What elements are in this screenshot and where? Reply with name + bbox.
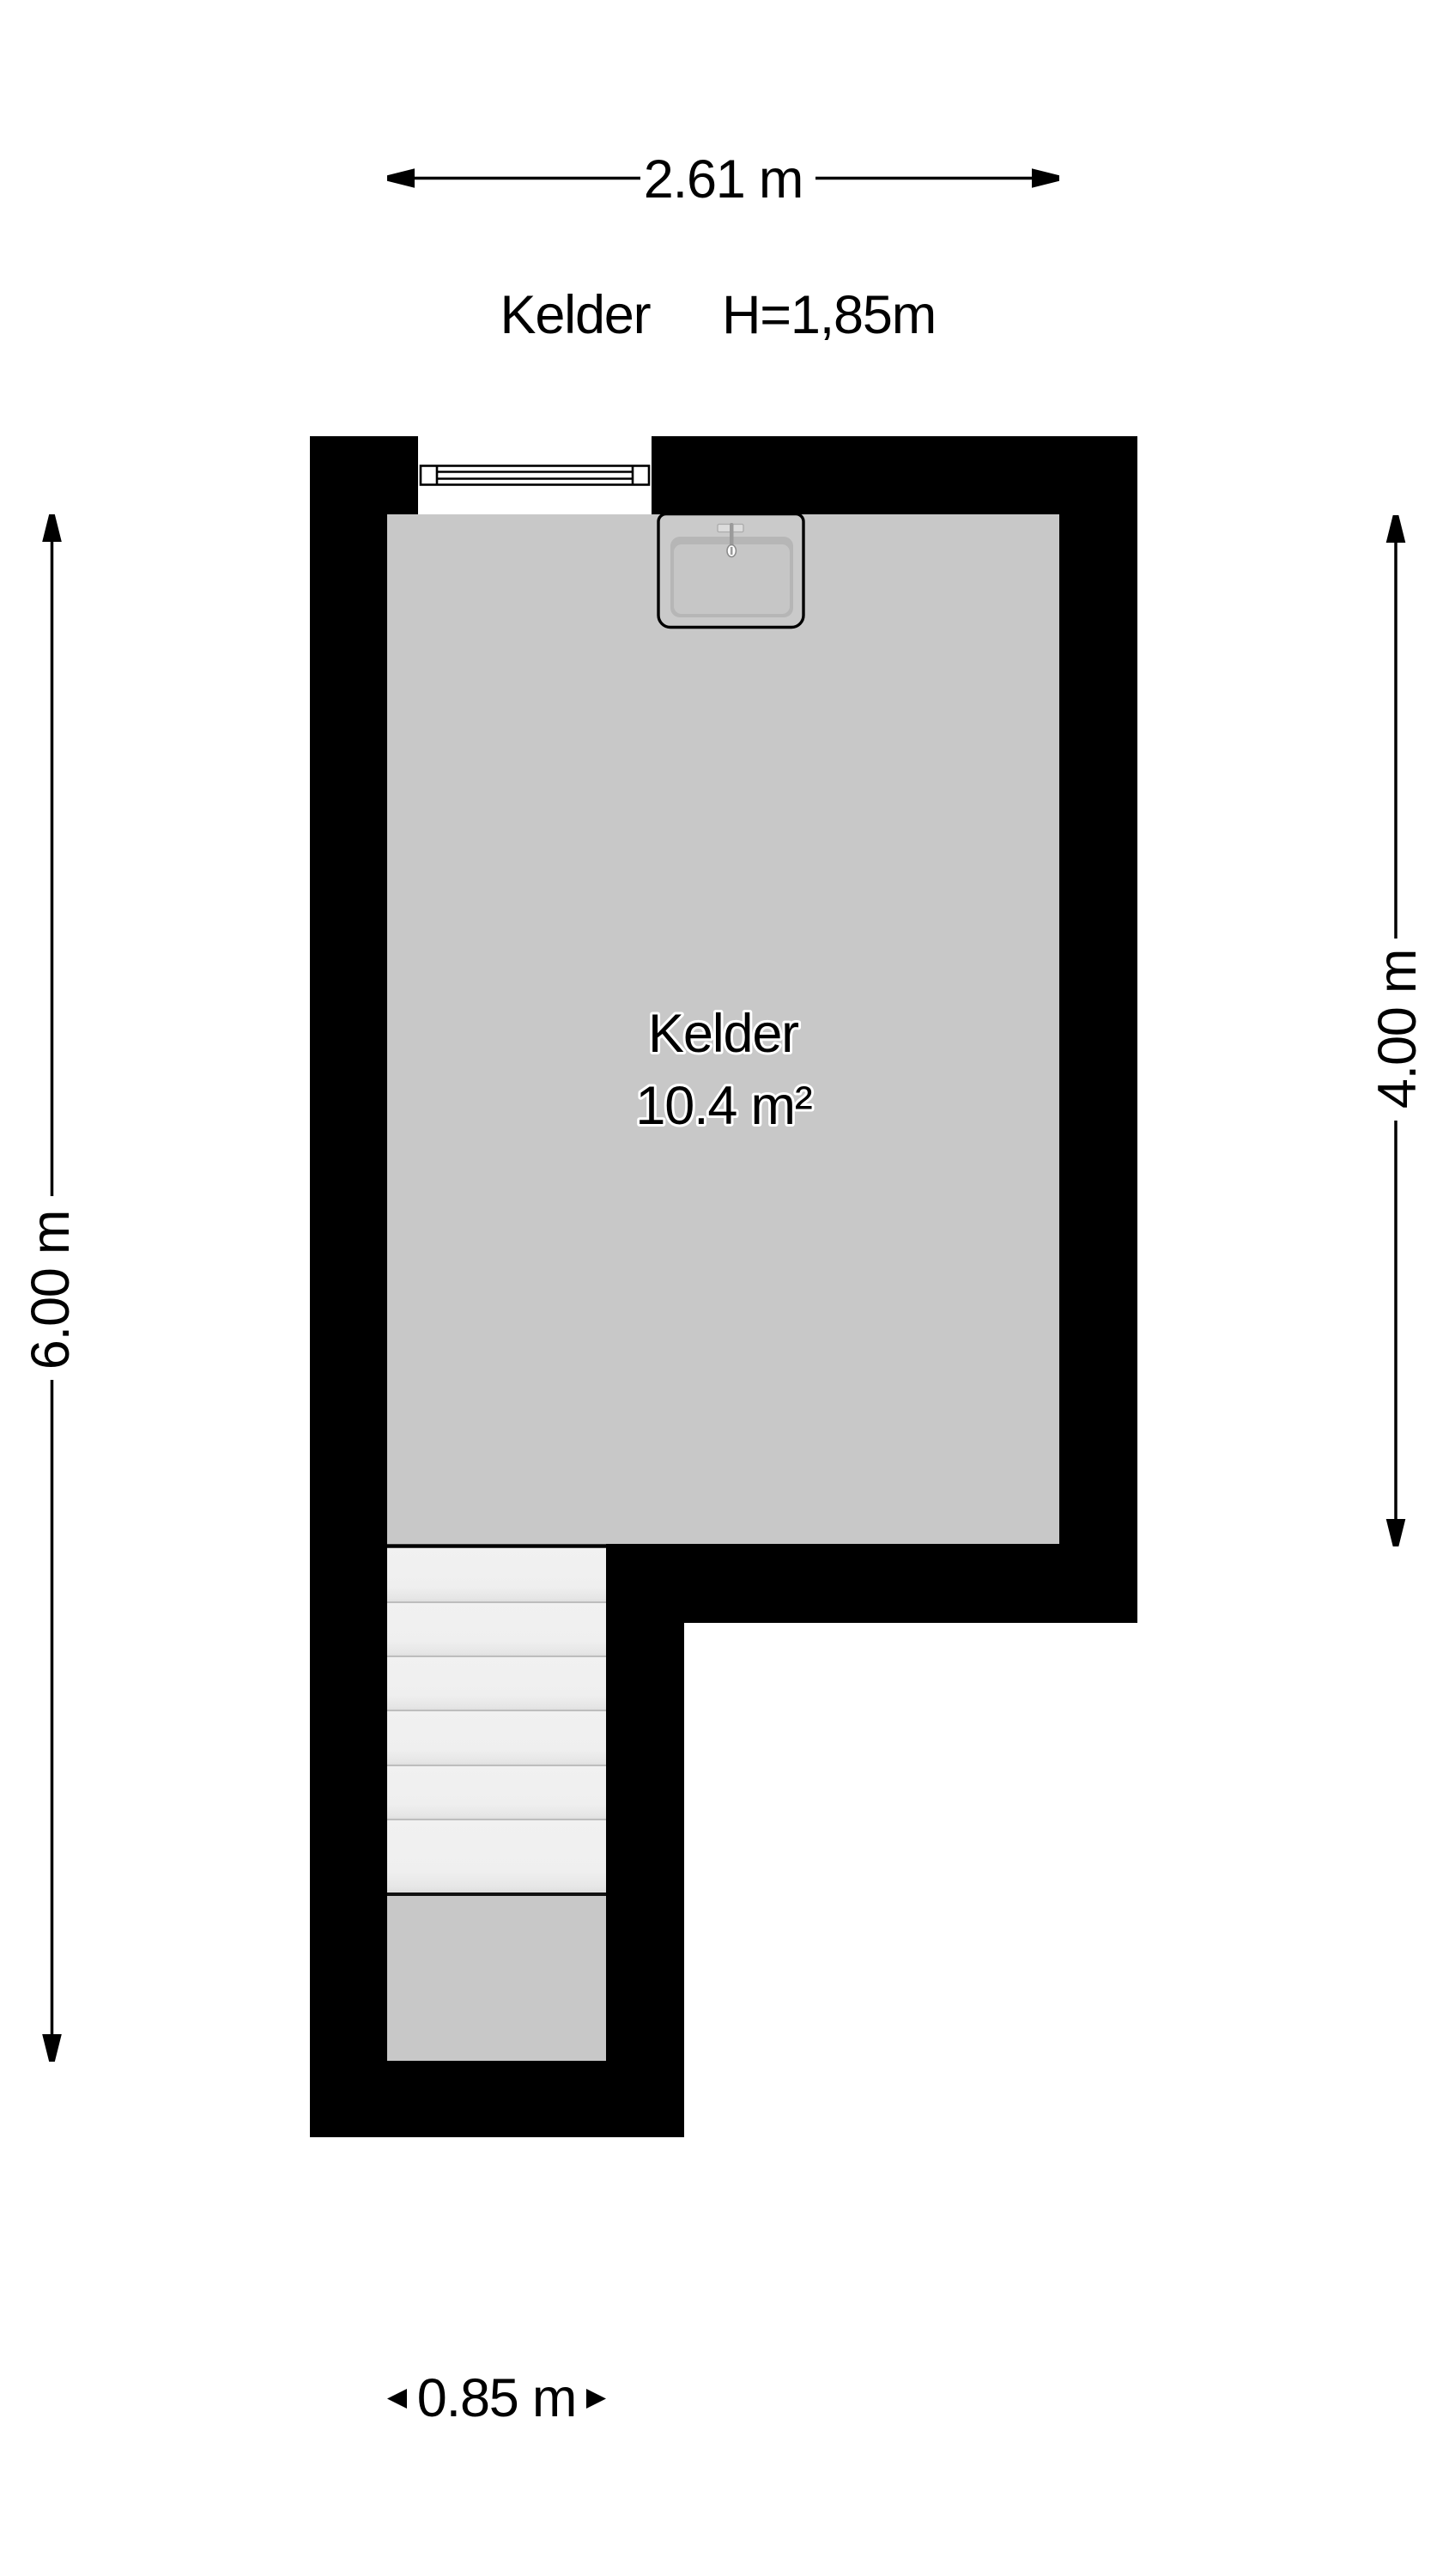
svg-text:Kelder: Kelder bbox=[500, 285, 651, 345]
svg-text:H=1,85m: H=1,85m bbox=[722, 285, 936, 345]
svg-text:0.85 m: 0.85 m bbox=[417, 2368, 576, 2428]
svg-text:2.61 m: 2.61 m bbox=[644, 149, 803, 210]
svg-text:6.00 m: 6.00 m bbox=[21, 1211, 81, 1370]
svg-text:4.00 m: 4.00 m bbox=[1367, 950, 1428, 1109]
svg-text:Kelder: Kelder bbox=[648, 1004, 798, 1064]
svg-text:10.4 m²: 10.4 m² bbox=[635, 1076, 811, 1136]
